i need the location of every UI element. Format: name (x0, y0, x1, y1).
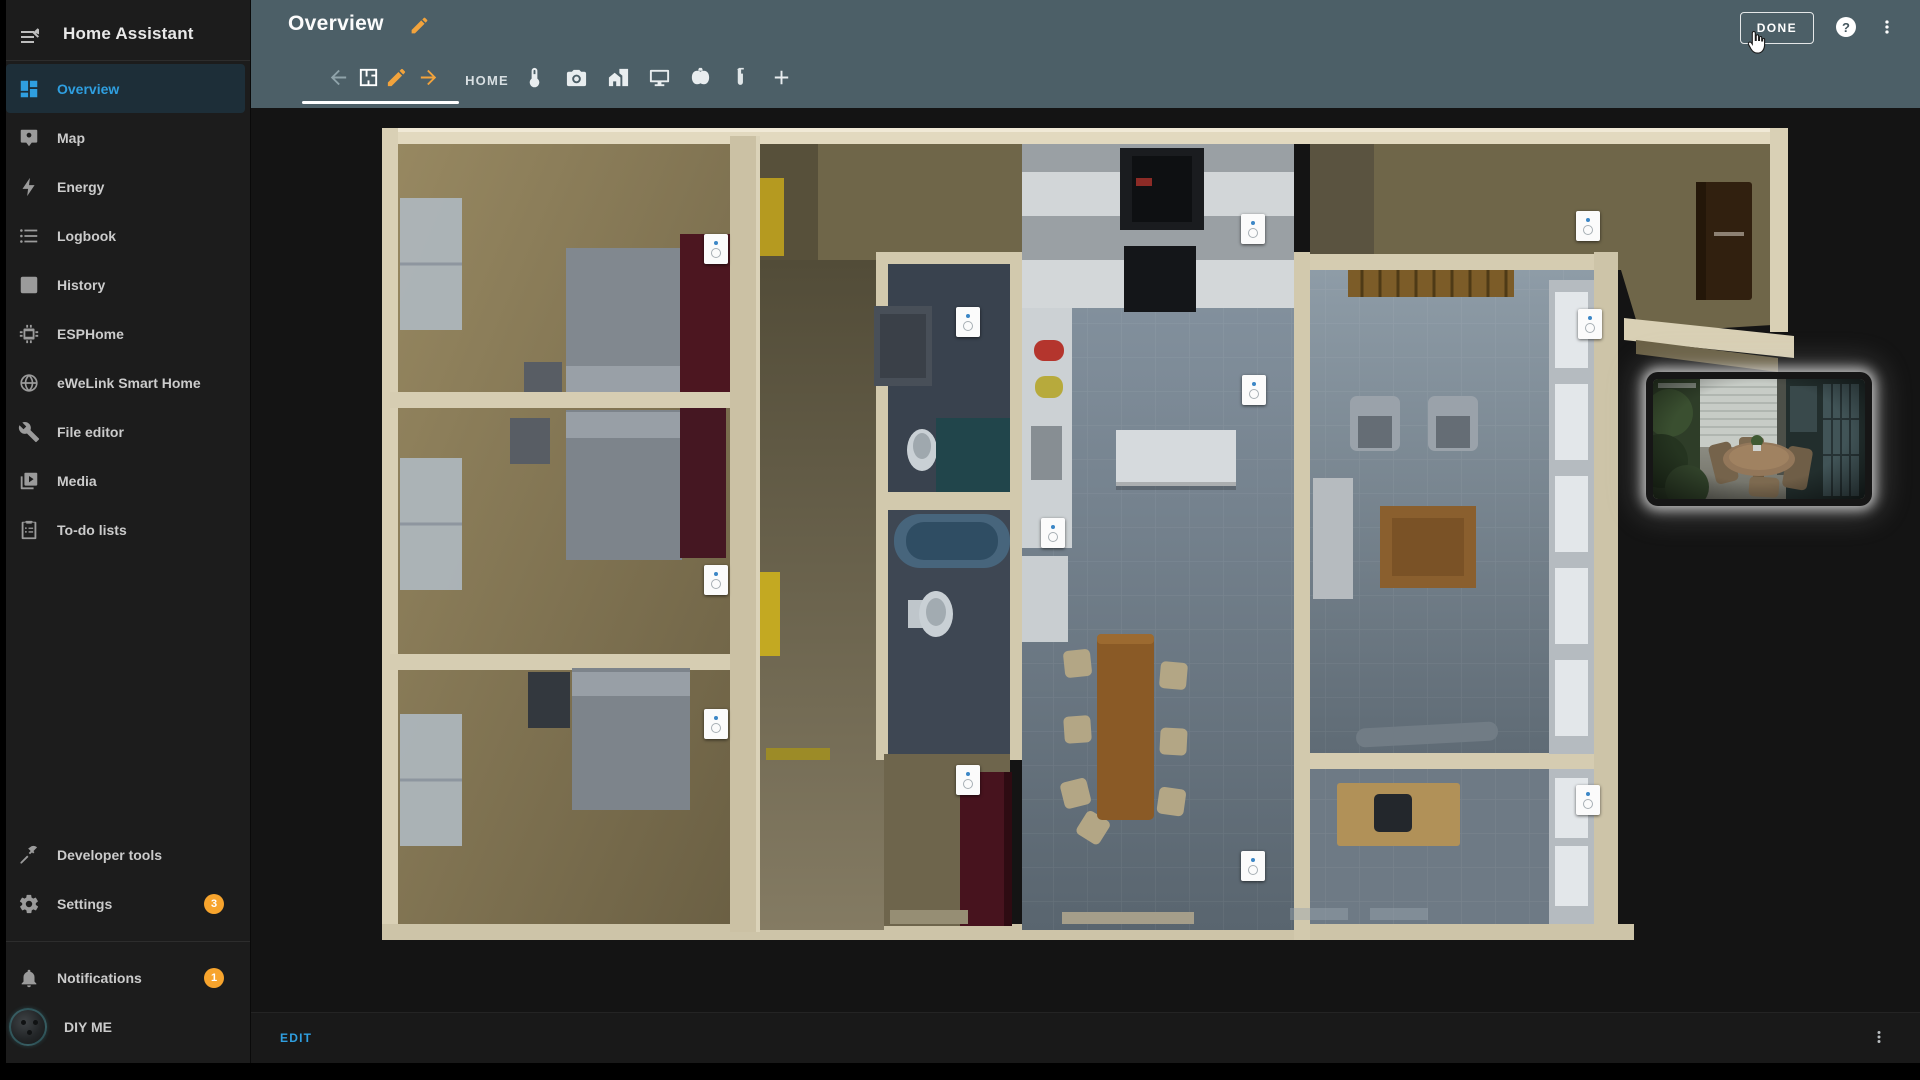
notification-count-badge: 1 (204, 968, 224, 988)
sidebar-item-label: To-do lists (57, 522, 127, 538)
chip-icon (18, 323, 40, 345)
add-view[interactable] (763, 62, 799, 98)
sidebar-item-settings[interactable]: Settings3 (6, 879, 250, 928)
play-box-icon (18, 470, 40, 492)
test-tube-icon (730, 66, 753, 94)
sidebar-item-label: Notifications (57, 970, 142, 986)
monitor-icon (648, 66, 671, 94)
pencil-icon (385, 66, 408, 94)
bottom-bar: EDIT (251, 1012, 1920, 1063)
sensor-badge-hallway[interactable] (956, 765, 980, 795)
floorplan-card (374, 120, 1794, 945)
sidebar: Home Assistant OverviewMapEnergyLogbookH… (6, 0, 251, 1063)
sidebar-item-media[interactable]: Media (6, 456, 250, 505)
sensor-badge-kitchen[interactable] (1041, 518, 1065, 548)
camera-icon (565, 66, 588, 94)
sidebar-item-map[interactable]: Map (6, 113, 250, 162)
sensor-badge-office[interactable] (1576, 785, 1600, 815)
sidebar-nav-secondary: Developer toolsSettings3 (6, 830, 250, 928)
floorplan-3d-image (374, 120, 1794, 945)
divider (6, 60, 250, 61)
app-title: Home Assistant (63, 24, 194, 44)
tab-label: HOME (465, 73, 509, 88)
sidebar-item-overview[interactable]: Overview (6, 64, 245, 113)
sidebar-item-logbook[interactable]: Logbook (6, 211, 250, 260)
map-account-icon (18, 127, 40, 149)
home-city-icon (607, 66, 630, 94)
divider (6, 941, 250, 942)
move-view-right[interactable] (410, 62, 446, 98)
done-button[interactable]: DONE (1740, 12, 1814, 44)
chart-box-icon (18, 274, 40, 296)
tab-home[interactable]: HOME (469, 62, 505, 98)
sidebar-item-label: DIY ME (64, 1019, 112, 1035)
tab-house[interactable] (600, 62, 636, 98)
sidebar-item-to-do-lists[interactable]: To-do lists (6, 505, 250, 554)
bottom-overflow-menu-icon[interactable] (1870, 1028, 1888, 1046)
hammer-icon (18, 844, 40, 866)
sidebar-item-label: Energy (57, 179, 104, 195)
lightning-bolt-icon (18, 176, 40, 198)
user-avatar (9, 1008, 47, 1046)
sidebar-item-developer-tools[interactable]: Developer tools (6, 830, 250, 879)
floor-plan-icon (357, 66, 380, 94)
sidebar-item-label: Media (57, 473, 97, 489)
sensor-badge-entry[interactable] (1576, 211, 1600, 241)
sidebar-item-label: Logbook (57, 228, 116, 244)
sidebar-item-history[interactable]: History (6, 260, 250, 309)
dashboard-content (251, 108, 1920, 1012)
sidebar-item-label: ESPHome (57, 326, 124, 342)
edit-view[interactable] (378, 62, 414, 98)
edit-link[interactable]: EDIT (280, 1031, 312, 1045)
thermometer-icon (523, 66, 546, 94)
plus-icon (770, 66, 793, 94)
sensor-badge-kitchen-island[interactable] (1242, 375, 1266, 405)
arrow-right-icon (417, 66, 440, 94)
sidebar-item-diy-me[interactable]: DIY ME (6, 1002, 250, 1051)
sidebar-item-file-editor[interactable]: File editor (6, 407, 250, 456)
tab-lab[interactable] (723, 62, 759, 98)
overflow-menu-icon[interactable] (1877, 17, 1897, 37)
sidebar-item-notifications[interactable]: Notifications1 (6, 953, 250, 1002)
sidebar-item-label: History (57, 277, 105, 293)
sidebar-item-label: eWeLink Smart Home (57, 375, 201, 391)
tab-cameras[interactable] (558, 62, 594, 98)
sidebar-nav-footer: Notifications1DIY ME (6, 953, 250, 1051)
help-icon[interactable]: ? (1836, 17, 1856, 37)
sidebar-item-label: Developer tools (57, 847, 162, 863)
clipboard-list-icon (18, 519, 40, 541)
tab-thermometer[interactable] (516, 62, 552, 98)
page-title: Overview (288, 12, 384, 36)
wrench-icon (18, 421, 40, 443)
sidebar-item-label: Settings (57, 896, 112, 912)
sensor-badge-kitchen-top[interactable] (1241, 214, 1265, 244)
camera-still-image (1653, 379, 1865, 499)
bell-icon (18, 967, 40, 989)
sidebar-item-label: Overview (57, 81, 119, 97)
sensor-badge-bedroom-2[interactable] (704, 565, 728, 595)
view-dashboard-icon (18, 78, 40, 100)
sidebar-item-esphome[interactable]: ESPHome (6, 309, 250, 358)
format-list-icon (18, 225, 40, 247)
arrow-left-icon (327, 66, 350, 94)
globe-icon (18, 372, 40, 394)
sidebar-header: Home Assistant (6, 8, 250, 60)
sidebar-item-label: File editor (57, 424, 124, 440)
cog-icon (18, 893, 40, 915)
sensor-badge-bedroom-1[interactable] (704, 234, 728, 264)
edit-dashboard-title-pencil-icon[interactable] (409, 15, 430, 36)
notification-count-badge: 3 (204, 894, 224, 914)
menu-toggle-icon[interactable] (18, 22, 42, 46)
sidebar-item-ewelink-smart-home[interactable]: eWeLink Smart Home (6, 358, 250, 407)
sensor-badge-dining[interactable] (1241, 851, 1265, 881)
active-tab-underline (302, 101, 459, 104)
sidebar-item-label: Map (57, 130, 85, 146)
app-window: Home Assistant OverviewMapEnergyLogbookH… (0, 0, 1920, 1080)
sensor-badge-bedroom-3[interactable] (704, 709, 728, 739)
sidebar-item-energy[interactable]: Energy (6, 162, 250, 211)
sensor-badge-living-room[interactable] (1578, 309, 1602, 339)
camera-feed-thumbnail[interactable] (1646, 372, 1872, 506)
tab-media[interactable] (641, 62, 677, 98)
view-tab-bar: HOME (251, 58, 1920, 104)
pumpkin-icon (689, 66, 712, 94)
top-app-bar: Overview DONE ? HOME (251, 0, 1920, 108)
tab-halloween[interactable] (682, 62, 718, 98)
sidebar-nav-main: OverviewMapEnergyLogbookHistoryESPHomeeW… (6, 64, 250, 554)
sensor-badge-bathroom[interactable] (956, 307, 980, 337)
